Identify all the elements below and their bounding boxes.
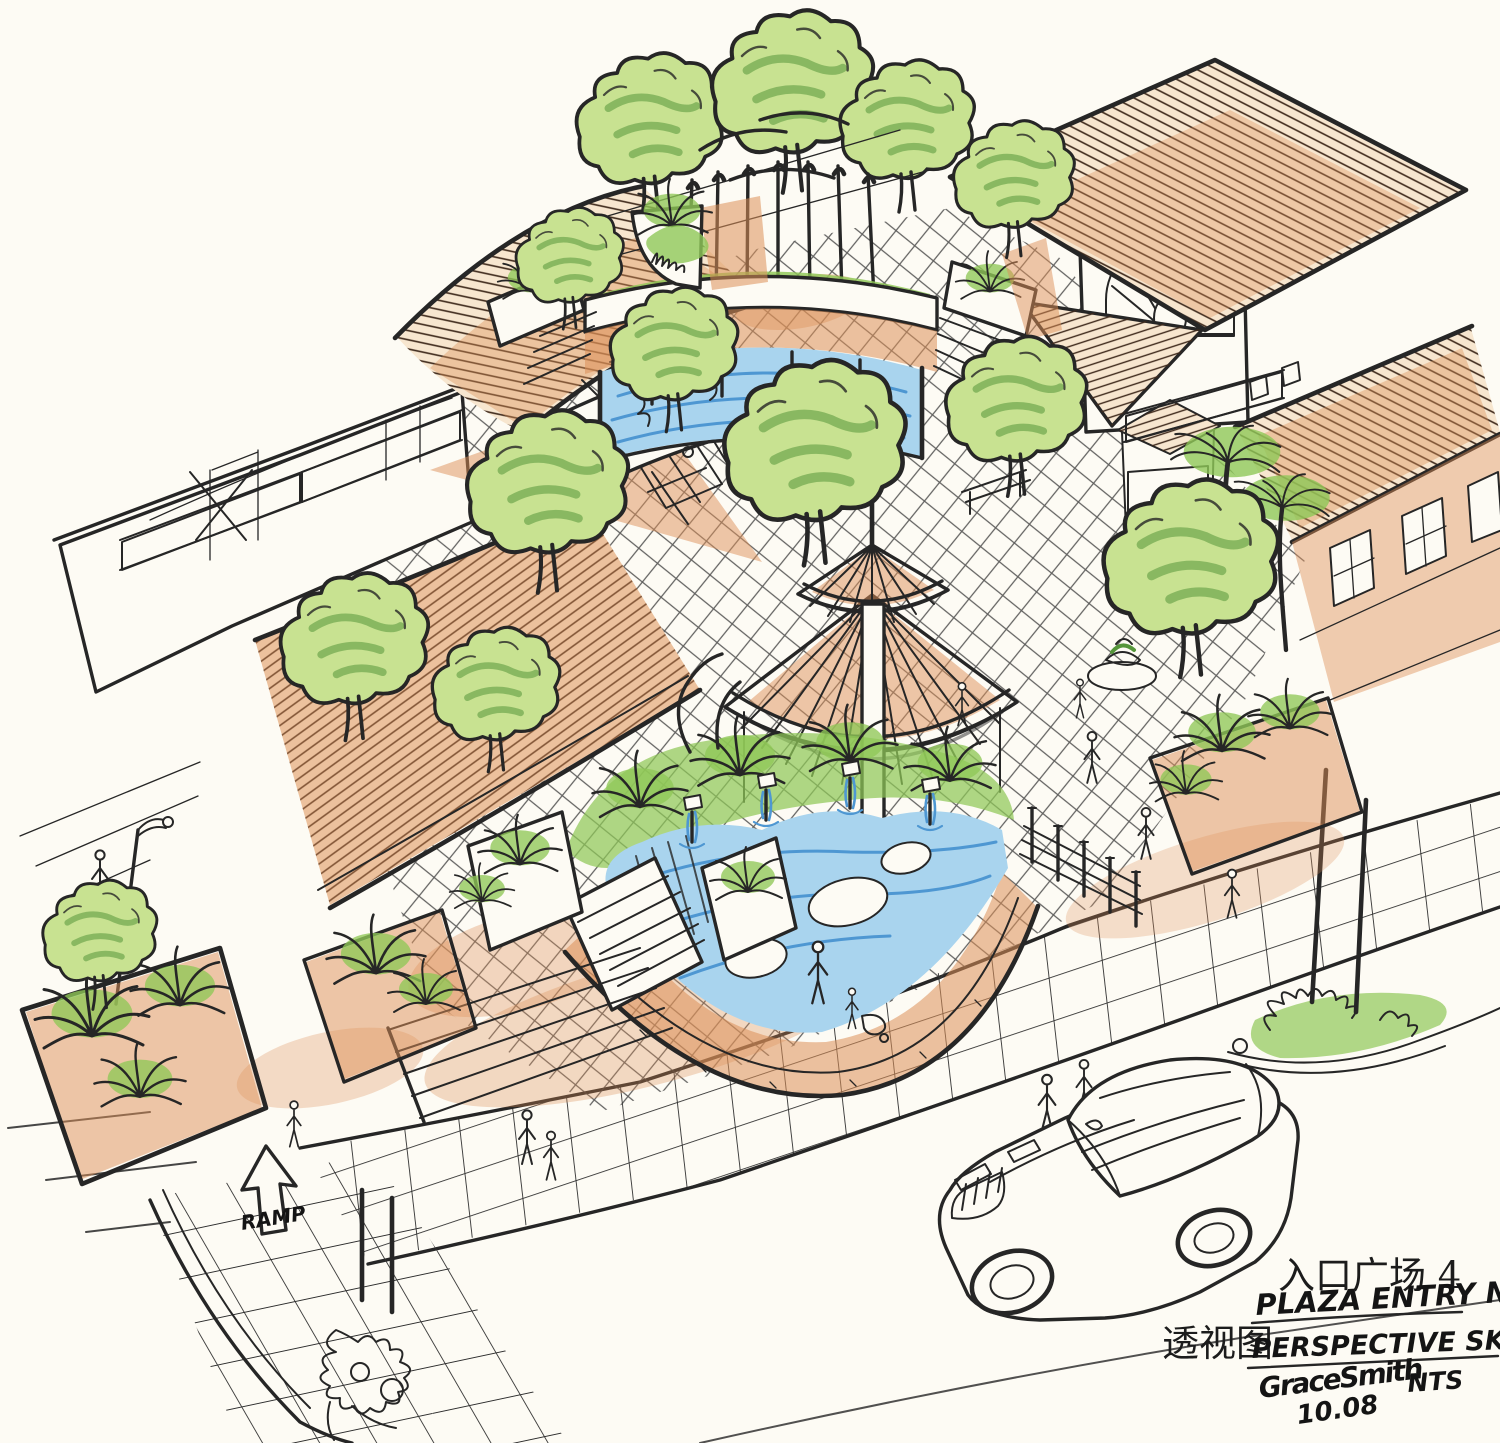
plaza-perspective-sketch: RAMP: [0, 0, 1500, 1443]
sketch-page: RAMP: [0, 0, 1500, 1443]
